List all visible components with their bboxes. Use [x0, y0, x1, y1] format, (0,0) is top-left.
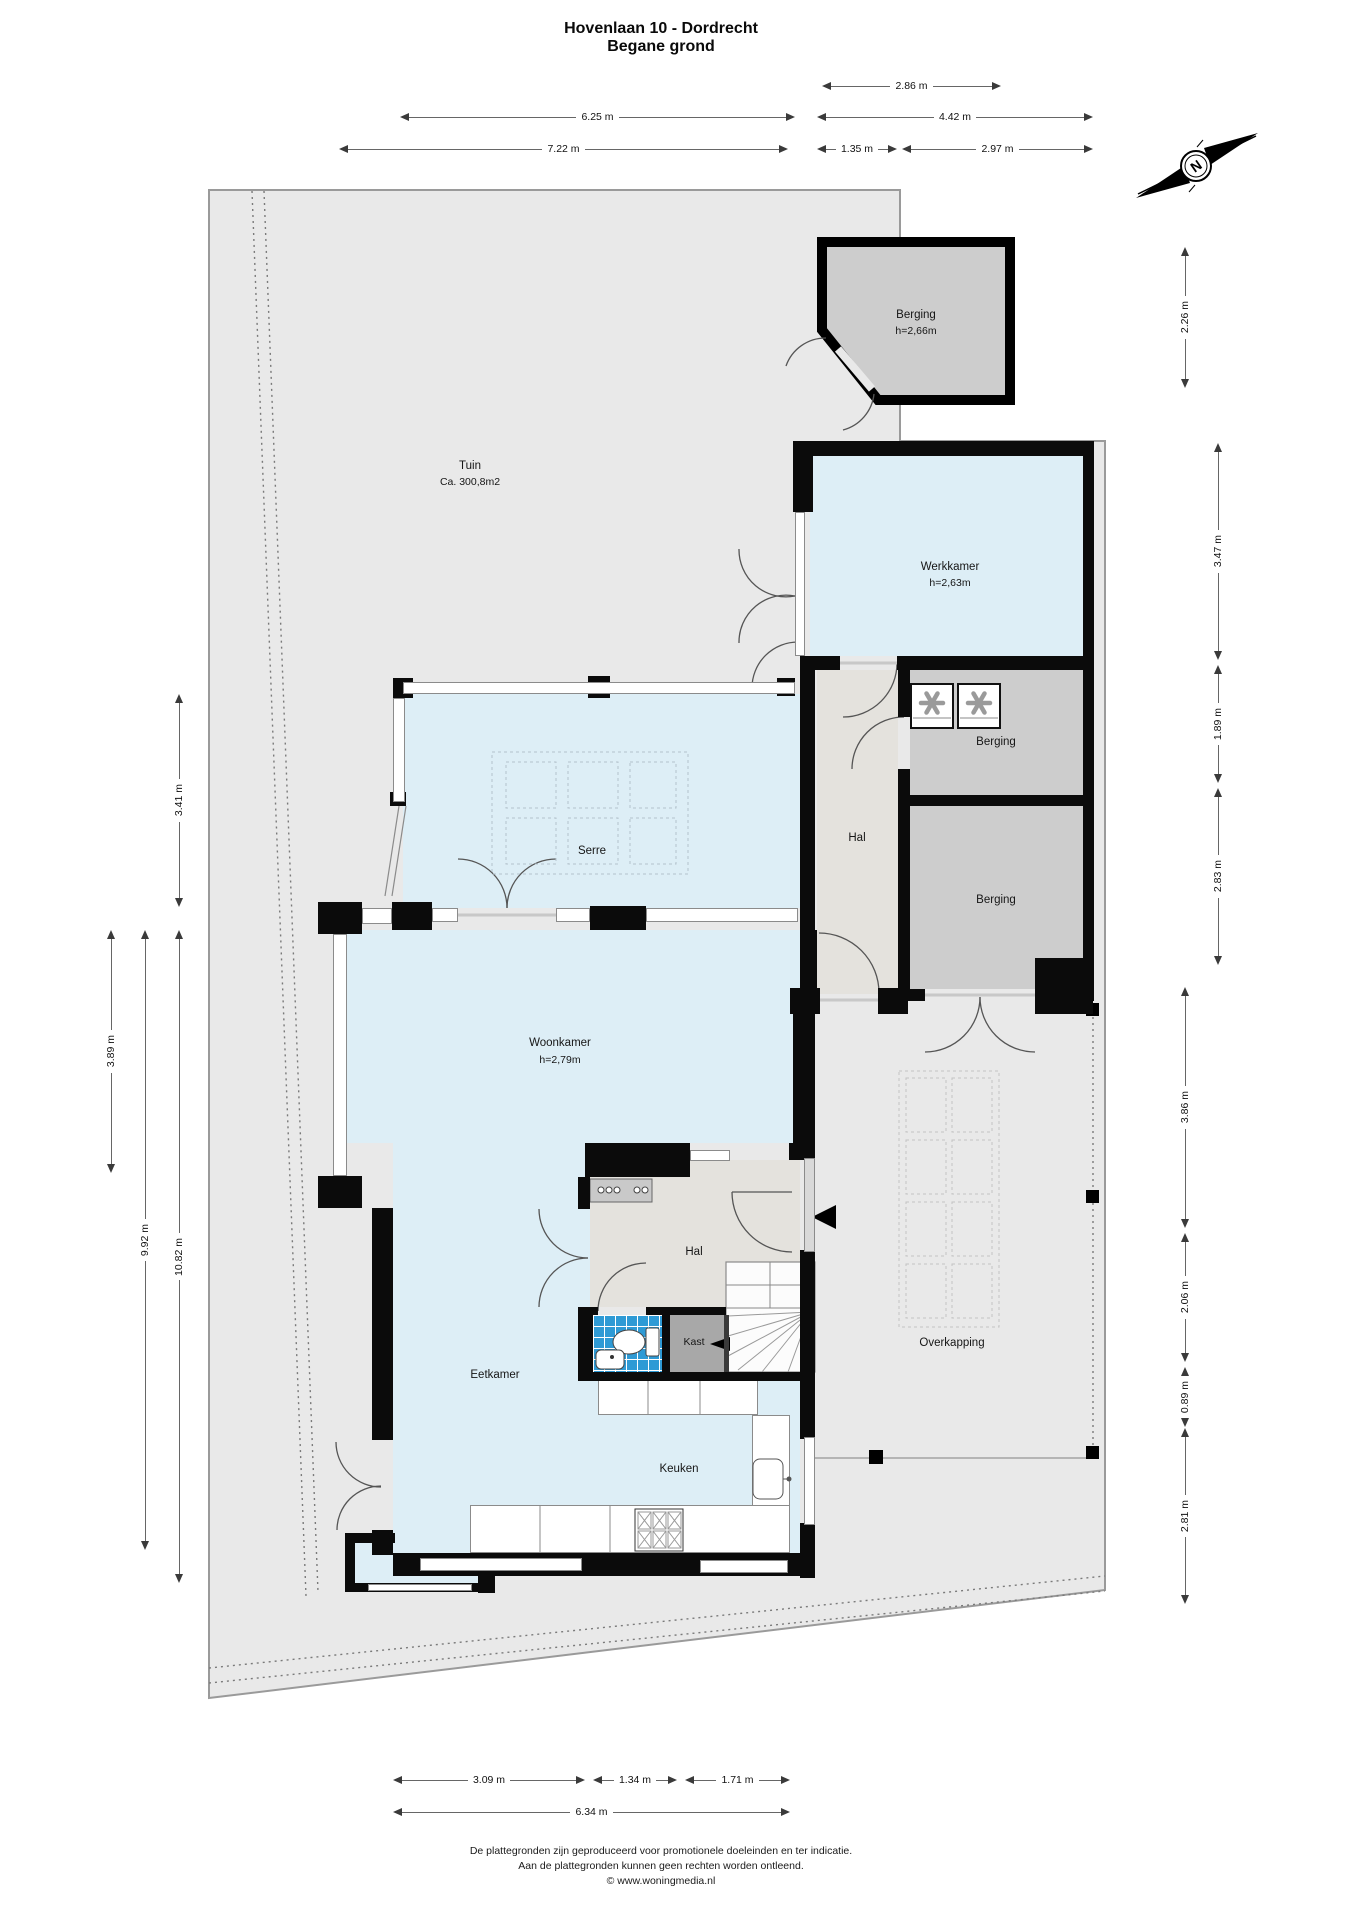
wall-segment — [790, 988, 820, 1014]
dimension-top-6_25: 6.25 m — [400, 110, 795, 124]
label-berging-boven: Berging — [976, 736, 1016, 748]
kitchen-sink-icon — [753, 1459, 783, 1499]
front-door-panel — [804, 1158, 815, 1252]
dimension-right-3_47: 3.47 m — [1211, 443, 1225, 660]
wall-segment — [878, 988, 908, 1014]
label-kast: Kast — [683, 1336, 704, 1348]
hal-cabinet-icon — [590, 1179, 652, 1202]
window — [403, 682, 795, 694]
label-woonkamer: Woonkamer — [529, 1037, 591, 1049]
garden-door-panel — [795, 512, 805, 656]
footer-disclaimer-1: De plattegronden zijn geproduceerd voor … — [470, 1845, 852, 1857]
label-berging-tuin-h: h=2,66m — [895, 325, 936, 337]
wall-segment — [585, 1143, 690, 1177]
overkapping-table — [899, 1071, 999, 1327]
wall-segment — [318, 902, 362, 934]
wall-segment — [910, 795, 1083, 806]
dimension-top-1_35: 1.35 m — [817, 142, 897, 156]
wall-segment — [1083, 441, 1094, 1001]
wall-segment — [800, 670, 815, 930]
dimension-left-10_82: 10.82 m — [172, 930, 186, 1583]
dimension-bottom-1_34: 1.34 m — [593, 1773, 677, 1787]
label-overkapping: Overkapping — [919, 1337, 984, 1349]
label-berging-tuin: Berging — [896, 309, 936, 321]
wc-sink-icon — [596, 1350, 624, 1369]
dimension-top-2_86: 2.86 m — [822, 79, 1001, 93]
dimension-left-3_89: 3.89 m — [104, 930, 118, 1173]
entrance-arrow — [812, 1205, 836, 1229]
window — [393, 698, 405, 802]
wall-segment — [897, 656, 1094, 670]
wall-segment — [590, 1307, 598, 1315]
window — [804, 1437, 815, 1525]
wall-segment — [578, 1307, 593, 1379]
wall-segment — [646, 1307, 726, 1315]
floorplan-page: Hovenlaan 10 - Dordrecht Begane grond — [0, 0, 1358, 1920]
dimension-top-2_97: 2.97 m — [902, 142, 1093, 156]
window — [362, 908, 392, 924]
wall-segment — [1035, 958, 1093, 1014]
furniture — [492, 684, 1000, 1553]
dimension-right-0_89: 0.89 m — [1178, 1367, 1192, 1423]
wall-segment — [372, 1208, 393, 1440]
window — [333, 934, 347, 1176]
window — [556, 908, 590, 922]
label-hal-zij: Hal — [848, 832, 865, 844]
dimension-bottom-1_71: 1.71 m — [685, 1773, 790, 1787]
window — [432, 908, 458, 922]
wall-segment — [795, 441, 1094, 456]
label-tuin: Tuin — [459, 460, 481, 472]
stove-icon — [635, 1509, 683, 1551]
dimension-left-3_41: 3.41 m — [172, 694, 186, 907]
label-woonkamer-h: h=2,79m — [539, 1054, 580, 1066]
label-serre: Serre — [578, 845, 606, 857]
dimension-right-2_26: 2.26 m — [1178, 247, 1192, 388]
wall-segment — [662, 1315, 670, 1372]
window — [646, 908, 798, 922]
wall-segment — [392, 902, 432, 930]
window — [420, 1558, 582, 1571]
label-eetkamer: Eetkamer — [470, 1369, 519, 1381]
dimension-left-9_92: 9.92 m — [138, 930, 152, 1550]
wall-segment — [793, 441, 813, 512]
wall-segment — [800, 656, 840, 670]
wall-segment — [800, 930, 817, 990]
label-keuken: Keuken — [659, 1463, 698, 1475]
wall-segment — [590, 906, 646, 930]
footer-copyright: © www.woningmedia.nl — [607, 1875, 716, 1887]
label-werkkamer: Werkkamer — [921, 561, 980, 573]
wall-segment — [578, 1177, 590, 1209]
wall-segment — [318, 1176, 362, 1208]
wall-segment — [578, 1372, 815, 1381]
dimension-top-4_42: 4.42 m — [817, 110, 1093, 124]
plan-linework — [0, 0, 1358, 1920]
window — [700, 1560, 788, 1573]
wall-segment — [898, 769, 910, 994]
dimension-right-1_89: 1.89 m — [1211, 665, 1225, 783]
label-tuin-area: Ca. 300,8m2 — [440, 476, 500, 488]
label-berging-onder: Berging — [976, 894, 1016, 906]
dimension-right-2_83: 2.83 m — [1211, 788, 1225, 965]
dimension-bottom-6_34: 6.34 m — [393, 1805, 790, 1819]
window — [368, 1584, 472, 1591]
wall-segment — [800, 1250, 815, 1439]
dimension-right-3_86: 3.86 m — [1178, 987, 1192, 1228]
dimension-right-2_06: 2.06 m — [1178, 1233, 1192, 1362]
wall-segment — [800, 1523, 815, 1578]
label-hal: Hal — [685, 1246, 702, 1258]
toilet-icon — [646, 1328, 659, 1356]
dimension-top-7_22: 7.22 m — [339, 142, 788, 156]
label-werkkamer-h: h=2,63m — [929, 577, 970, 589]
footer-disclaimer-2: Aan de plattegronden kunnen geen rechten… — [518, 1860, 803, 1872]
dimension-bottom-3_09: 3.09 m — [393, 1773, 585, 1787]
wall-segment — [724, 1315, 729, 1372]
dimension-right-2_81: 2.81 m — [1178, 1428, 1192, 1604]
wall-segment — [898, 670, 910, 717]
window — [690, 1150, 730, 1161]
wall-segment — [793, 1012, 815, 1149]
